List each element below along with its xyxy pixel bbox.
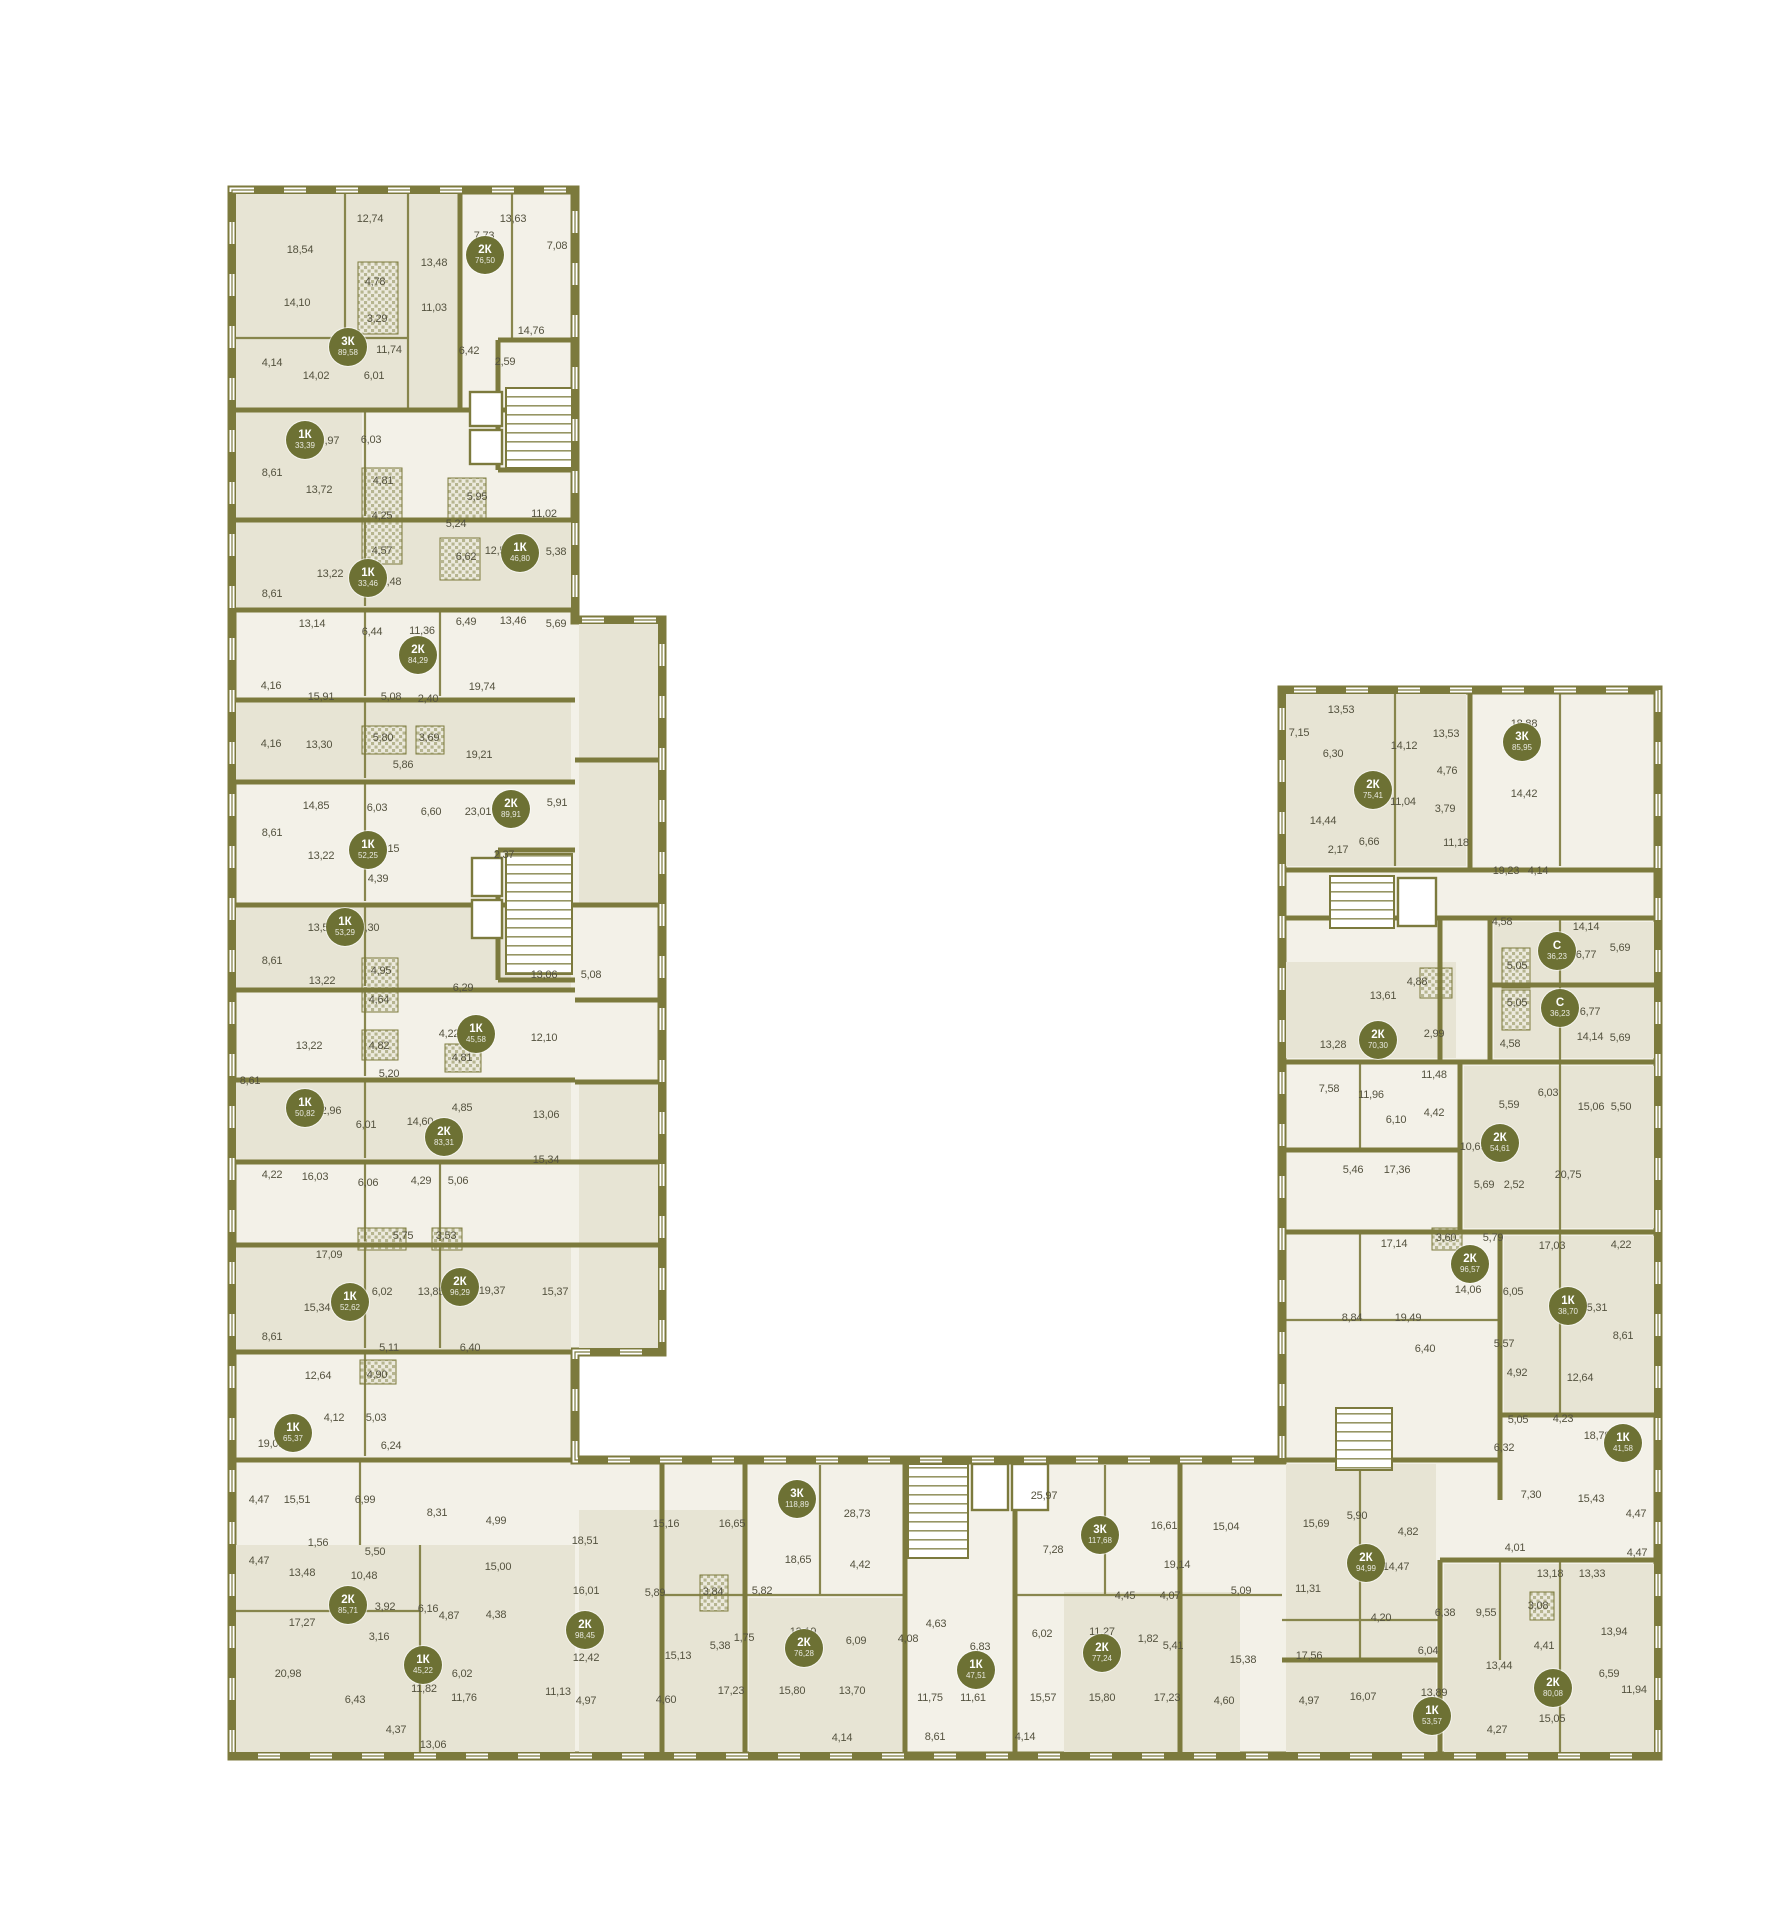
apartment-area: 54,61: [1490, 1145, 1510, 1154]
apartment-area: 77,24: [1092, 1655, 1112, 1664]
apartment-badges-layer: 3К 89,58 2К 76,50 1К 33,39 1К 46,80 1К 3…: [0, 0, 1774, 1920]
apartment-area: 45,58: [466, 1036, 486, 1045]
apartment-badge[interactable]: 1К 52,25: [349, 831, 387, 869]
apartment-area: 36,23: [1550, 1010, 1570, 1019]
apartment-badge[interactable]: 1К 65,37: [274, 1414, 312, 1452]
apartment-area: 118,89: [785, 1501, 809, 1510]
apartment-badge[interactable]: 2К 85,71: [329, 1586, 367, 1624]
apartment-badge[interactable]: С 36,23: [1541, 989, 1579, 1027]
apartment-area: 89,58: [338, 349, 358, 358]
apartment-area: 33,46: [358, 580, 378, 589]
apartment-badge[interactable]: 2К 89,91: [492, 790, 530, 828]
apartment-badge[interactable]: 2К 54,61: [1481, 1124, 1519, 1162]
apartment-area: 76,28: [794, 1650, 814, 1659]
apartment-badge[interactable]: 2К 84,29: [399, 636, 437, 674]
apartment-badge[interactable]: 3К 85,95: [1503, 723, 1541, 761]
apartment-badge[interactable]: 1К 41,58: [1604, 1424, 1642, 1462]
apartment-badge[interactable]: 2К 77,24: [1083, 1634, 1121, 1672]
apartment-badge[interactable]: 1К 47,51: [957, 1651, 995, 1689]
apartment-area: 33,39: [295, 442, 315, 451]
apartment-badge[interactable]: 2К 70,30: [1359, 1021, 1397, 1059]
apartment-badge[interactable]: 1К 45,22: [404, 1646, 442, 1684]
apartment-area: 52,25: [358, 852, 378, 861]
apartment-badge[interactable]: 2К 94,99: [1347, 1544, 1385, 1582]
apartment-area: 94,99: [1356, 1565, 1376, 1574]
apartment-badge[interactable]: 3К 118,89: [778, 1480, 816, 1518]
apartment-area: 89,91: [501, 811, 521, 820]
apartment-badge[interactable]: 2К 75,41: [1354, 771, 1392, 809]
apartment-area: 80,08: [1543, 1690, 1563, 1699]
apartment-badge[interactable]: 1К 50,82: [286, 1089, 324, 1127]
apartment-area: 53,29: [335, 929, 355, 938]
apartment-area: 96,29: [450, 1289, 470, 1298]
apartment-area: 83,31: [434, 1139, 454, 1148]
floor-plan: 18,54 12,74 13,48 7,73 13,63 7,08 14,10 …: [0, 0, 1774, 1920]
apartment-area: 52,62: [340, 1304, 360, 1313]
apartment-area: 70,30: [1368, 1042, 1388, 1051]
apartment-area: 45,22: [413, 1667, 433, 1676]
apartment-badge[interactable]: 2К 80,08: [1534, 1669, 1572, 1707]
apartment-area: 75,41: [1363, 792, 1383, 801]
apartment-badge[interactable]: 1К 45,58: [457, 1015, 495, 1053]
apartment-area: 76,50: [475, 257, 495, 266]
apartment-badge[interactable]: 2К 96,29: [441, 1268, 479, 1306]
apartment-badge[interactable]: 1К 38,70: [1549, 1287, 1587, 1325]
apartment-area: 47,51: [966, 1672, 986, 1681]
apartment-badge[interactable]: 1К 33,46: [349, 559, 387, 597]
apartment-badge[interactable]: 1К 53,29: [326, 908, 364, 946]
apartment-badge[interactable]: 2К 76,50: [466, 236, 504, 274]
apartment-area: 85,95: [1512, 744, 1532, 753]
apartment-badge[interactable]: 3К 117,68: [1081, 1516, 1119, 1554]
apartment-badge[interactable]: 2К 96,57: [1451, 1245, 1489, 1283]
apartment-area: 50,82: [295, 1110, 315, 1119]
apartment-badge[interactable]: 2К 76,28: [785, 1629, 823, 1667]
apartment-badge[interactable]: С 36,23: [1538, 932, 1576, 970]
apartment-badge[interactable]: 1К 33,39: [286, 421, 324, 459]
apartment-area: 96,57: [1460, 1266, 1480, 1275]
apartment-area: 84,29: [408, 657, 428, 666]
apartment-badge[interactable]: 1К 52,62: [331, 1283, 369, 1321]
apartment-area: 117,68: [1088, 1537, 1112, 1546]
apartment-area: 46,80: [510, 555, 530, 564]
apartment-area: 65,37: [283, 1435, 303, 1444]
apartment-badge[interactable]: 2К 98,45: [566, 1611, 604, 1649]
apartment-area: 36,23: [1547, 953, 1567, 962]
apartment-area: 98,45: [575, 1632, 595, 1641]
apartment-badge[interactable]: 1К 46,80: [501, 534, 539, 572]
apartment-badge[interactable]: 2К 83,31: [425, 1118, 463, 1156]
apartment-badge[interactable]: 3К 89,58: [329, 328, 367, 366]
apartment-area: 38,70: [1558, 1308, 1578, 1317]
apartment-area: 85,71: [338, 1607, 358, 1616]
apartment-area: 41,58: [1613, 1445, 1633, 1454]
apartment-area: 53,57: [1422, 1718, 1442, 1727]
apartment-badge[interactable]: 1К 53,57: [1413, 1697, 1451, 1735]
